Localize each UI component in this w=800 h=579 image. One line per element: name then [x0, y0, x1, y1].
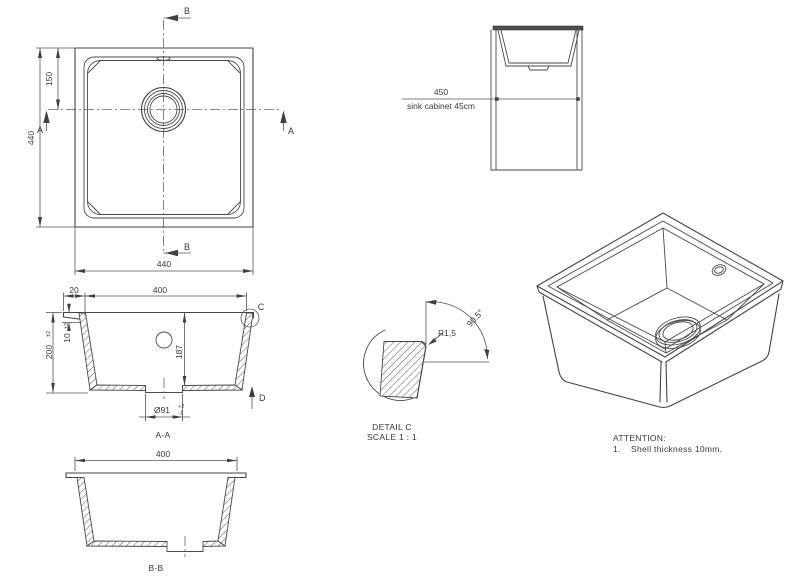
top-view: 440 150 440 B B	[26, 6, 294, 275]
section-marker-b-bottom-label: B	[184, 242, 190, 252]
section-marker-a-right-label: A	[288, 126, 294, 136]
dim-440-bottom: 440	[75, 227, 253, 275]
detail-c-callout-label: C	[258, 302, 265, 312]
attention-item-text: Shell thickness 10mm.	[631, 444, 722, 454]
sink-bowl-edge	[88, 61, 241, 215]
dim-150: 150	[44, 48, 60, 110]
detail-c-scale: SCALE 1 : 1	[367, 432, 417, 442]
dim-200-tol: ±2	[46, 331, 52, 337]
iso-rim	[537, 213, 783, 357]
attention-item-number: 1.	[613, 444, 621, 454]
detail-c-radius-value: R1,5	[438, 328, 456, 338]
cabinet-label: sink cabinet 45cm	[407, 101, 475, 111]
dim-187: 187	[174, 313, 186, 387]
technical-drawing-page: 440 150 440 B B	[0, 0, 800, 579]
dim-10-tol: ±2	[64, 323, 70, 329]
section-aa-title: A-A	[155, 430, 170, 440]
iso-drain	[652, 312, 703, 353]
view-d-arrow: D	[249, 386, 266, 409]
section-marker-a-left: A	[37, 111, 50, 136]
section-marker-a-right: A	[280, 111, 294, 137]
cabinet-sink-body	[498, 30, 579, 70]
detail-c-angle-dim: 90.5°	[423, 300, 489, 362]
detail-c-title: DETAIL C	[372, 422, 412, 432]
isometric-view	[537, 213, 783, 408]
cabinet-sides	[491, 30, 582, 170]
section-aa-outline	[64, 313, 254, 320]
dim-440-left-value: 440	[26, 131, 36, 145]
dim-drain-value: Ø91	[154, 405, 170, 415]
dim-440-bottom-value: 440	[157, 259, 171, 269]
section-bb-flange	[66, 473, 246, 478]
sink-outer-edge	[75, 48, 253, 227]
section-bb-view: 400 B-B	[66, 449, 246, 573]
corner-chamfers	[88, 61, 240, 214]
iso-bowl-interior	[557, 228, 764, 353]
attention-note: ATTENTION: 1. Shell thickness 10mm.	[613, 433, 722, 454]
dim-20-400: 20 400	[64, 285, 247, 316]
section-bb-title: B-B	[148, 563, 163, 573]
dim-20-value: 20	[69, 285, 79, 295]
dim-400-value: 400	[153, 285, 167, 295]
dim-400-bb-value: 400	[156, 449, 170, 459]
dim-drain-tol-plus: +2	[178, 404, 184, 410]
section-marker-b-top-label: B	[184, 6, 190, 16]
view-d-label: D	[259, 393, 266, 403]
detail-c-wall-section	[380, 342, 426, 399]
iso-overflow-hole	[711, 263, 728, 277]
section-aa-walls	[79, 313, 253, 391]
section-marker-b-bottom: B	[164, 242, 192, 256]
dim-drain-diameter: Ø91 +2 -1	[139, 394, 190, 421]
attention-heading: ATTENTION:	[613, 433, 666, 443]
section-bb-walls	[77, 478, 235, 547]
sink-technical-drawing: 440 150 440 B B	[0, 0, 800, 579]
dim-450-value: 450	[434, 87, 448, 97]
dim-150-value: 150	[44, 72, 54, 86]
dim-200-value: 200	[44, 345, 54, 359]
dim-187-value: 187	[174, 345, 184, 359]
countertop	[493, 26, 583, 30]
dim-drain-tol-minus: -1	[178, 411, 183, 417]
section-marker-b-top: B	[164, 6, 192, 21]
detail-c-radius-dim: R1,5	[428, 328, 456, 345]
dim-10: 10 ±2	[62, 303, 80, 343]
detail-c-angle-value: 90.5°	[465, 307, 486, 329]
dim-400-bb: 400	[75, 449, 237, 471]
section-marker-a-left-label: A	[37, 125, 43, 135]
detail-c-view: 90.5° R1,5 DETAIL C SCALE 1 : 1	[364, 300, 490, 442]
dim-10-value: 10	[62, 333, 72, 343]
section-aa-view: 20 400 200 ±2 10 ±2	[44, 285, 266, 440]
section-aa-overflow-hole	[156, 332, 172, 348]
cabinet-view: 450 sink cabinet 45cm	[402, 26, 583, 170]
sink-rim-inner-edge	[84, 57, 244, 218]
